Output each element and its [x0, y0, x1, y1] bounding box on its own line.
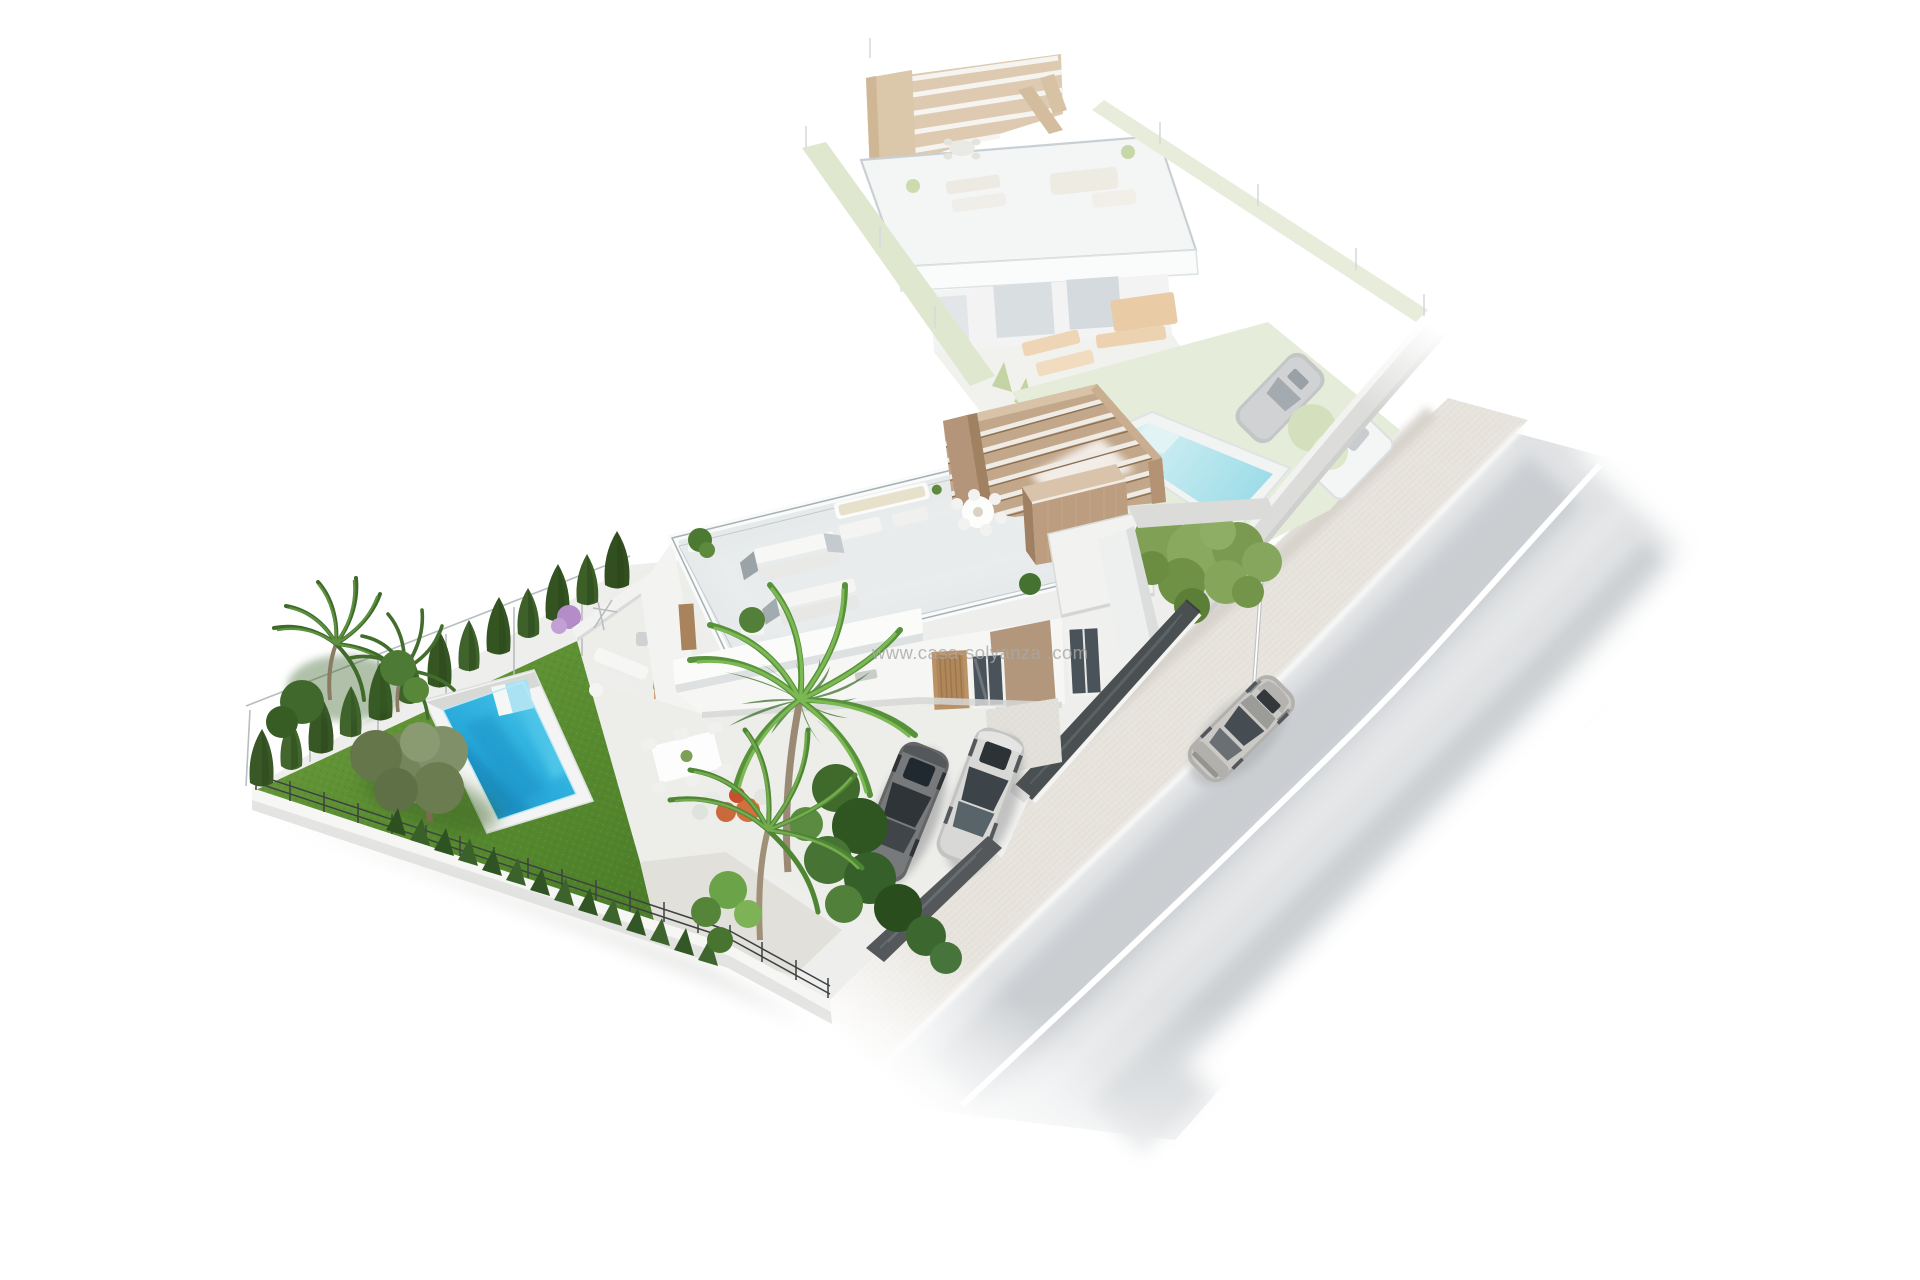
- svg-text:www.casa-solyanza .com: www.casa-solyanza .com: [871, 642, 1088, 663]
